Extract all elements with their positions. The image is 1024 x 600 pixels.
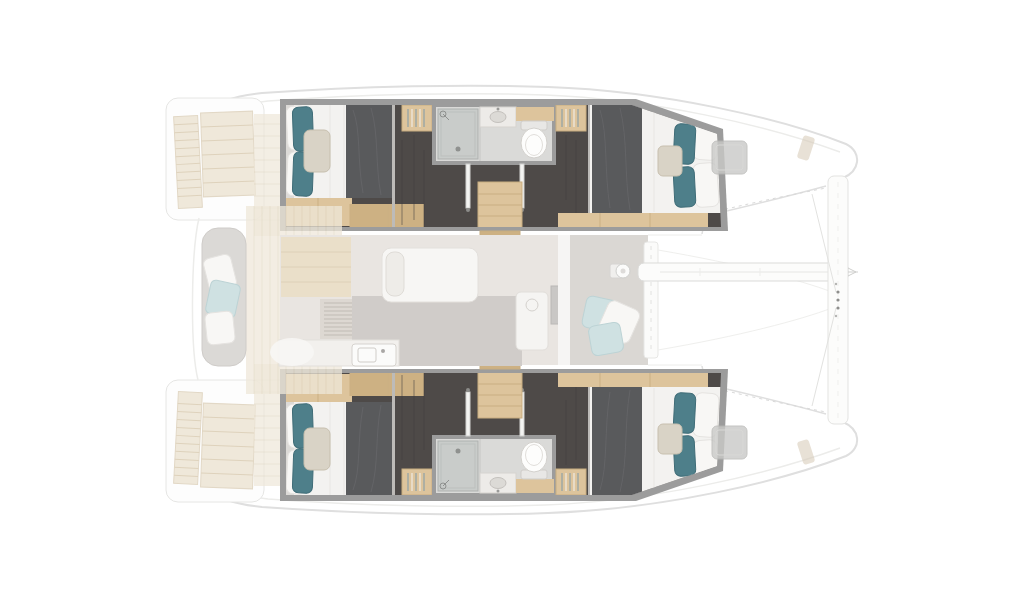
wardrobe <box>402 105 432 131</box>
toilet-bowl <box>521 128 547 158</box>
wardrobe-cabinet <box>402 105 432 131</box>
deck-cushion-blue <box>588 321 625 356</box>
cockpit-edge <box>192 218 199 380</box>
faucet <box>497 108 500 111</box>
teak-steps <box>201 111 256 197</box>
wardrobe-cabinet <box>556 105 586 131</box>
beige-pillow <box>304 130 330 172</box>
galley-corner-unit <box>270 338 314 366</box>
bow-fitting <box>836 306 839 309</box>
bow-fitting <box>835 315 837 317</box>
wardrobe <box>556 105 586 131</box>
foredeck <box>570 235 648 365</box>
seat-bolster <box>386 252 404 296</box>
bow-fitting <box>836 290 839 293</box>
hull-interior <box>280 99 728 248</box>
galley-sink-unit <box>352 344 396 366</box>
bathroom <box>432 103 556 165</box>
sliding-door <box>466 164 470 208</box>
beige-pillow <box>658 146 682 176</box>
saloon <box>270 235 570 366</box>
deck-hatch <box>712 141 747 174</box>
anchor-roller <box>848 268 858 276</box>
teak-board <box>174 115 203 208</box>
steps <box>478 182 522 232</box>
island-counter <box>516 292 548 350</box>
bathroom-shelf <box>516 107 554 121</box>
bow-fitting <box>835 283 837 285</box>
cabin-partition <box>392 105 395 227</box>
bed-blanket <box>346 105 392 198</box>
mast-pin <box>621 269 626 274</box>
sink-basin <box>490 112 506 123</box>
bow-fitting <box>836 298 839 301</box>
trampoline-edge <box>658 308 832 350</box>
coachroof-band <box>558 235 570 365</box>
cabin-wood-floor <box>558 213 708 227</box>
catamaran-layout-diagram <box>0 0 1024 600</box>
galley-faucet <box>381 349 385 353</box>
cabin-wood-step <box>350 204 424 230</box>
door-knob <box>466 208 470 212</box>
teak-platform <box>174 115 203 208</box>
bed-blanket <box>592 105 642 213</box>
shower-drain <box>456 147 461 152</box>
cockpit-cushion-white <box>204 311 235 346</box>
